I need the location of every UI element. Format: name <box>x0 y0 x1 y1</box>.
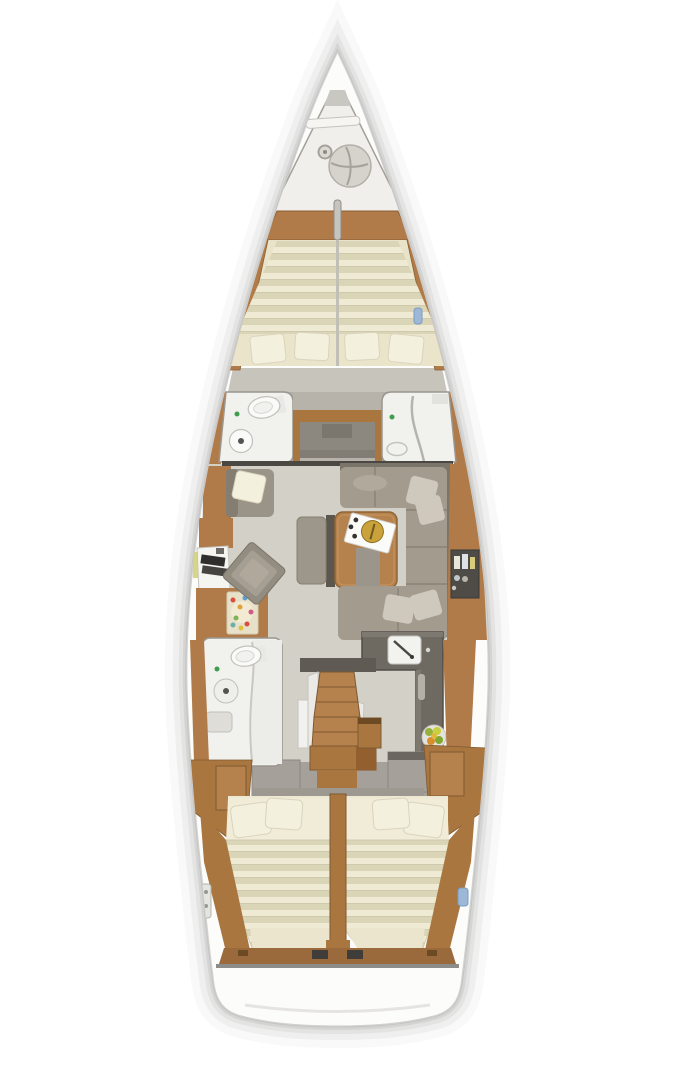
forward-cabin-floor <box>228 368 447 392</box>
pillow <box>372 798 410 830</box>
mast-post <box>334 200 341 240</box>
starboard-shower-room <box>382 392 456 462</box>
aft-cabins <box>200 788 475 968</box>
tread <box>313 717 361 732</box>
salon <box>193 461 487 642</box>
hull-port-light-aft <box>458 888 468 906</box>
tread <box>318 672 356 687</box>
frame-top <box>293 410 382 422</box>
center-passage <box>293 392 382 465</box>
knob <box>426 648 430 652</box>
shelf <box>432 394 448 404</box>
tread <box>316 687 358 702</box>
cabin-divider <box>330 794 346 954</box>
pillow <box>344 332 379 361</box>
stairs <box>312 672 362 747</box>
hull-port-light-fwd <box>414 308 422 324</box>
tap <box>390 415 395 420</box>
pillow <box>388 333 425 364</box>
frame-left <box>293 410 300 465</box>
tap <box>235 412 240 417</box>
shower-tray <box>206 712 232 732</box>
tap <box>215 667 220 672</box>
nav-desk <box>193 546 230 592</box>
pillow <box>250 333 287 364</box>
table-leaf <box>356 548 380 588</box>
floorplan-canvas <box>0 0 675 1080</box>
stern-bulkhead-line <box>216 964 459 968</box>
yacht-floorplan <box>0 0 675 1080</box>
pillow <box>265 798 303 830</box>
port-toilet-room <box>219 392 293 462</box>
blanket-fold <box>250 928 330 951</box>
berth-divider <box>336 240 339 366</box>
aft-head <box>196 638 282 766</box>
interior <box>190 90 487 1012</box>
dining-table <box>335 512 397 588</box>
pillow <box>231 470 266 504</box>
blanket-fold <box>345 928 425 951</box>
tread <box>312 732 362 747</box>
towel <box>418 674 425 700</box>
bench <box>297 515 335 587</box>
engine-box <box>300 658 376 672</box>
tread <box>314 702 360 717</box>
frame-right <box>375 410 382 465</box>
forward-heads <box>205 392 470 465</box>
pillow <box>294 332 329 361</box>
foot-board <box>219 948 456 964</box>
seat-cushion <box>353 475 387 491</box>
